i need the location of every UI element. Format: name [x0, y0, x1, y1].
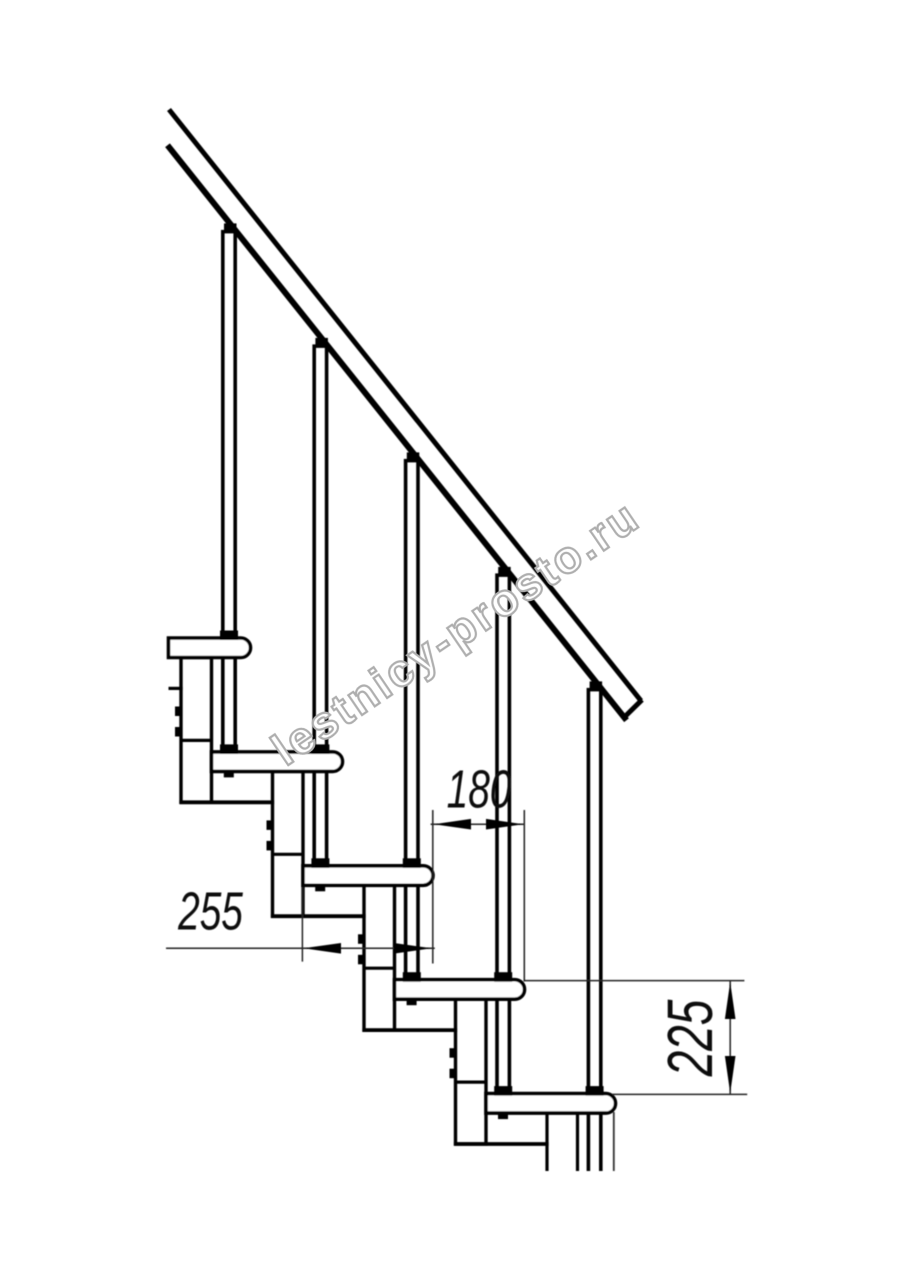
svg-text:180: 180: [447, 758, 512, 819]
svg-text:255: 255: [177, 880, 243, 941]
svg-text:225: 225: [655, 999, 726, 1078]
